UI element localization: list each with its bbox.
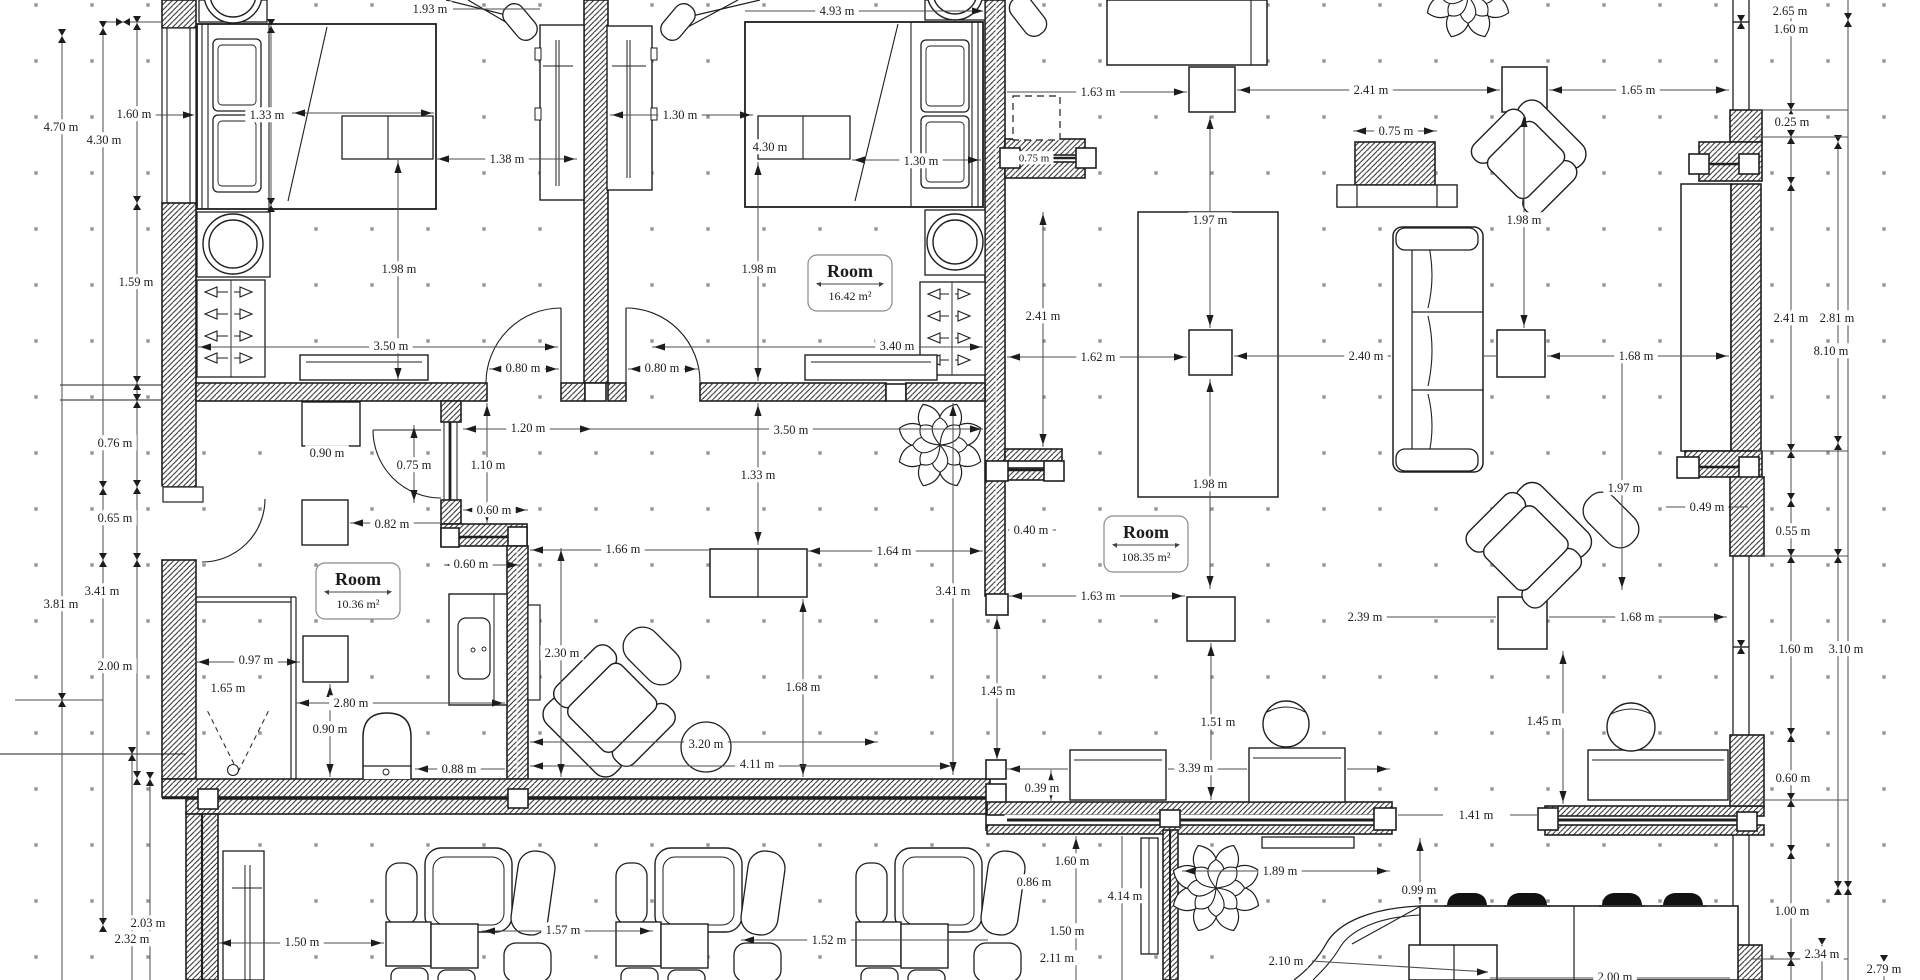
svg-text:0.75 m: 0.75 m <box>1379 124 1414 138</box>
svg-text:Room: Room <box>827 261 873 281</box>
svg-text:2.32 m: 2.32 m <box>115 932 150 946</box>
svg-text:2.00 m: 2.00 m <box>98 659 133 673</box>
svg-text:1.10 m: 1.10 m <box>471 458 506 472</box>
svg-text:0.88 m: 0.88 m <box>442 762 477 776</box>
svg-text:1.00 m: 1.00 m <box>1775 904 1810 918</box>
svg-text:0.75 m: 0.75 m <box>397 458 432 472</box>
svg-text:1.68 m: 1.68 m <box>1620 610 1655 624</box>
svg-text:1.65 m: 1.65 m <box>1621 83 1656 97</box>
svg-text:1.68 m: 1.68 m <box>786 680 821 694</box>
svg-text:1.30 m: 1.30 m <box>663 108 698 122</box>
svg-text:0.60 m: 0.60 m <box>454 557 489 571</box>
svg-text:0.80 m: 0.80 m <box>506 361 541 375</box>
svg-text:2.81 m: 2.81 m <box>1820 311 1855 325</box>
svg-text:1.51 m: 1.51 m <box>1201 715 1236 729</box>
svg-text:4.70 m: 4.70 m <box>44 120 79 134</box>
svg-text:0.60 m: 0.60 m <box>477 503 512 517</box>
svg-text:3.50 m: 3.50 m <box>774 423 809 437</box>
svg-text:1.60 m: 1.60 m <box>117 107 152 121</box>
svg-text:4.14 m: 4.14 m <box>1108 889 1143 903</box>
svg-text:2.30 m: 2.30 m <box>545 646 580 660</box>
svg-text:1.45 m: 1.45 m <box>1527 714 1562 728</box>
svg-text:1.98 m: 1.98 m <box>1193 477 1228 491</box>
svg-text:2.00 m: 2.00 m <box>1598 970 1633 980</box>
svg-text:0.25 m: 0.25 m <box>1775 115 1810 129</box>
svg-text:4.11 m: 4.11 m <box>740 757 775 771</box>
svg-text:2.41 m: 2.41 m <box>1026 309 1061 323</box>
svg-text:0.82 m: 0.82 m <box>375 517 410 531</box>
svg-text:2.40 m: 2.40 m <box>1349 349 1384 363</box>
svg-text:108.35 m²: 108.35 m² <box>1122 550 1171 564</box>
svg-text:2.41 m: 2.41 m <box>1354 83 1389 97</box>
svg-text:1.33 m: 1.33 m <box>741 468 776 482</box>
svg-text:1.33 m: 1.33 m <box>250 108 285 122</box>
svg-text:1.65 m: 1.65 m <box>211 681 246 695</box>
svg-text:10.36 m²: 10.36 m² <box>337 597 380 611</box>
svg-text:0.80 m: 0.80 m <box>645 361 680 375</box>
svg-text:3.41 m: 3.41 m <box>936 584 971 598</box>
svg-text:1.60 m: 1.60 m <box>1774 22 1809 36</box>
svg-text:2.80 m: 2.80 m <box>334 696 369 710</box>
svg-text:1.52 m: 1.52 m <box>812 933 847 947</box>
svg-text:2.41 m: 2.41 m <box>1774 311 1809 325</box>
svg-text:2.34 m: 2.34 m <box>1805 947 1840 961</box>
svg-text:3.20 m: 3.20 m <box>689 737 724 751</box>
svg-text:1.41 m: 1.41 m <box>1459 808 1494 822</box>
svg-text:0.99 m: 0.99 m <box>1402 883 1437 897</box>
svg-text:1.98 m: 1.98 m <box>742 262 777 276</box>
svg-text:3.41 m: 3.41 m <box>85 584 120 598</box>
svg-text:0.86 m: 0.86 m <box>1017 875 1052 889</box>
svg-text:2.10 m: 2.10 m <box>1269 954 1304 968</box>
svg-text:1.30 m: 1.30 m <box>904 154 939 168</box>
svg-text:3.81 m: 3.81 m <box>44 597 79 611</box>
svg-text:0.60 m: 0.60 m <box>1776 771 1811 785</box>
svg-text:0.65 m: 0.65 m <box>98 511 133 525</box>
svg-text:0.97 m: 0.97 m <box>239 653 274 667</box>
svg-text:0.40 m: 0.40 m <box>1014 523 1049 537</box>
svg-text:0.55 m: 0.55 m <box>1776 524 1811 538</box>
svg-text:0.90 m: 0.90 m <box>310 446 345 460</box>
svg-text:1.50 m: 1.50 m <box>285 935 320 949</box>
svg-text:1.62 m: 1.62 m <box>1081 350 1116 364</box>
svg-text:3.10 m: 3.10 m <box>1829 642 1864 656</box>
svg-text:0.90 m: 0.90 m <box>313 722 348 736</box>
svg-text:1.63 m: 1.63 m <box>1081 85 1116 99</box>
svg-text:16.42 m²: 16.42 m² <box>829 289 872 303</box>
svg-text:1.59 m: 1.59 m <box>119 275 154 289</box>
svg-text:1.45 m: 1.45 m <box>981 684 1016 698</box>
svg-text:1.38 m: 1.38 m <box>490 152 525 166</box>
svg-text:4.30 m: 4.30 m <box>753 140 788 154</box>
svg-text:1.57 m: 1.57 m <box>546 923 581 937</box>
svg-text:1.20 m: 1.20 m <box>511 421 546 435</box>
svg-text:0.76 m: 0.76 m <box>98 436 133 450</box>
svg-text:Room: Room <box>1123 522 1169 542</box>
svg-text:1.98 m: 1.98 m <box>382 262 417 276</box>
svg-text:1.63 m: 1.63 m <box>1081 589 1116 603</box>
svg-text:2.65 m: 2.65 m <box>1773 4 1808 18</box>
svg-text:1.68 m: 1.68 m <box>1619 349 1654 363</box>
svg-text:1.60 m: 1.60 m <box>1779 642 1814 656</box>
svg-text:3.39 m: 3.39 m <box>1179 761 1214 775</box>
svg-text:4.30 m: 4.30 m <box>87 133 122 147</box>
svg-text:1.97 m: 1.97 m <box>1193 213 1228 227</box>
svg-text:1.66 m: 1.66 m <box>606 542 641 556</box>
svg-text:4.93 m: 4.93 m <box>820 4 855 18</box>
svg-text:1.50 m: 1.50 m <box>1050 924 1085 938</box>
svg-text:3.50 m: 3.50 m <box>374 339 409 353</box>
svg-text:2.11 m: 2.11 m <box>1040 951 1075 965</box>
svg-text:0.49 m: 0.49 m <box>1690 500 1725 514</box>
svg-text:0.39 m: 0.39 m <box>1025 781 1060 795</box>
svg-text:1.98 m: 1.98 m <box>1507 213 1542 227</box>
svg-text:1.60 m: 1.60 m <box>1055 854 1090 868</box>
svg-text:2.39 m: 2.39 m <box>1348 610 1383 624</box>
svg-text:1.64 m: 1.64 m <box>877 544 912 558</box>
svg-text:1.89 m: 1.89 m <box>1263 864 1298 878</box>
svg-text:1.97 m: 1.97 m <box>1608 481 1643 495</box>
svg-text:Room: Room <box>335 569 381 589</box>
svg-text:1.93 m: 1.93 m <box>413 2 448 16</box>
svg-text:2.79 m: 2.79 m <box>1867 962 1902 976</box>
svg-text:8.10 m: 8.10 m <box>1814 344 1849 358</box>
svg-text:3.40 m: 3.40 m <box>880 339 915 353</box>
svg-text:0.75 m: 0.75 m <box>1019 153 1050 165</box>
svg-text:2.03 m: 2.03 m <box>131 916 166 930</box>
